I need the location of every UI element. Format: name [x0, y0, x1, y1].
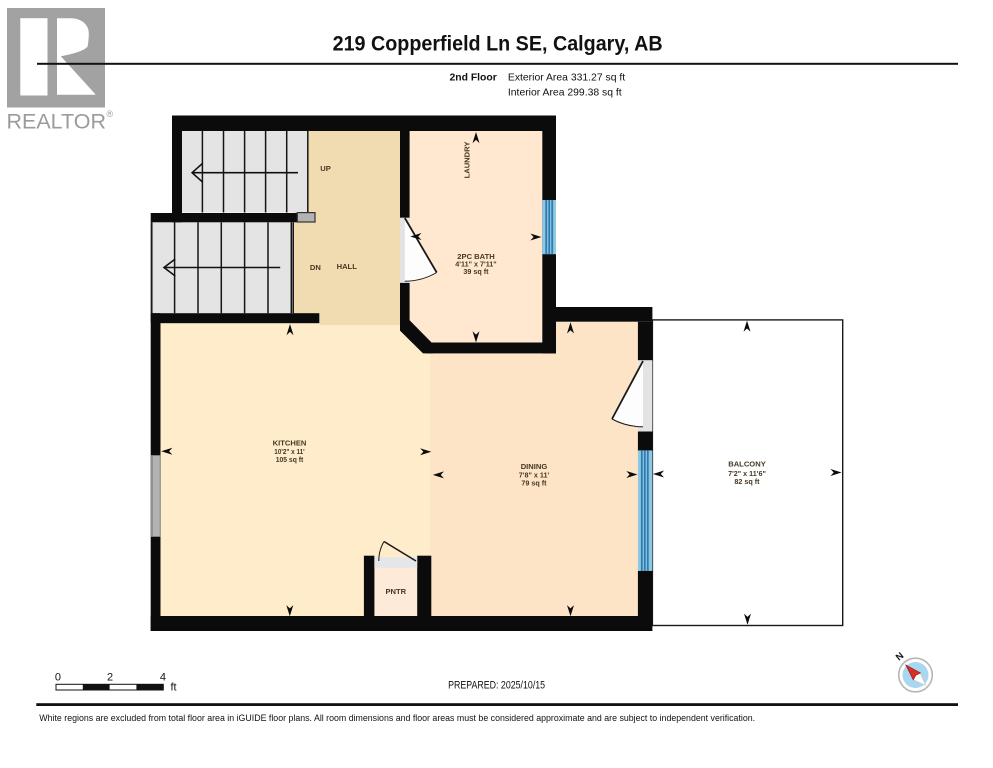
svg-text:LAUNDRY: LAUNDRY — [463, 142, 472, 179]
svg-text:Exterior Area 331.27 sq ft: Exterior Area 331.27 sq ft — [508, 73, 625, 84]
svg-text:39 sq ft: 39 sq ft — [463, 267, 489, 276]
svg-text:105 sq ft: 105 sq ft — [276, 455, 304, 464]
svg-text:2nd Floor: 2nd Floor — [449, 73, 496, 84]
svg-text:HALL: HALL — [337, 262, 358, 271]
svg-text:BALCONY: BALCONY — [728, 459, 766, 468]
svg-text:Interior Area 299.38 sq ft: Interior Area 299.38 sq ft — [508, 87, 622, 98]
svg-text:2: 2 — [107, 672, 113, 684]
svg-text:4: 4 — [160, 672, 166, 684]
svg-text:82 sq ft: 82 sq ft — [734, 477, 760, 486]
svg-text:White regions are excluded fro: White regions are excluded from total fl… — [39, 713, 755, 723]
svg-text:79 sq ft: 79 sq ft — [521, 478, 547, 487]
svg-text:PNTR: PNTR — [385, 587, 406, 596]
svg-text:REALTOR: REALTOR — [7, 109, 107, 133]
svg-text:PREPARED: 2025/10/15: PREPARED: 2025/10/15 — [448, 680, 545, 692]
svg-text:0: 0 — [55, 672, 61, 684]
svg-text:UP: UP — [320, 164, 331, 173]
svg-text:DN: DN — [310, 263, 321, 272]
svg-text:ft: ft — [171, 682, 177, 694]
svg-text:219 Copperfield Ln SE, Calgary: 219 Copperfield Ln SE, Calgary, AB — [333, 33, 663, 56]
svg-text:®: ® — [107, 109, 114, 119]
